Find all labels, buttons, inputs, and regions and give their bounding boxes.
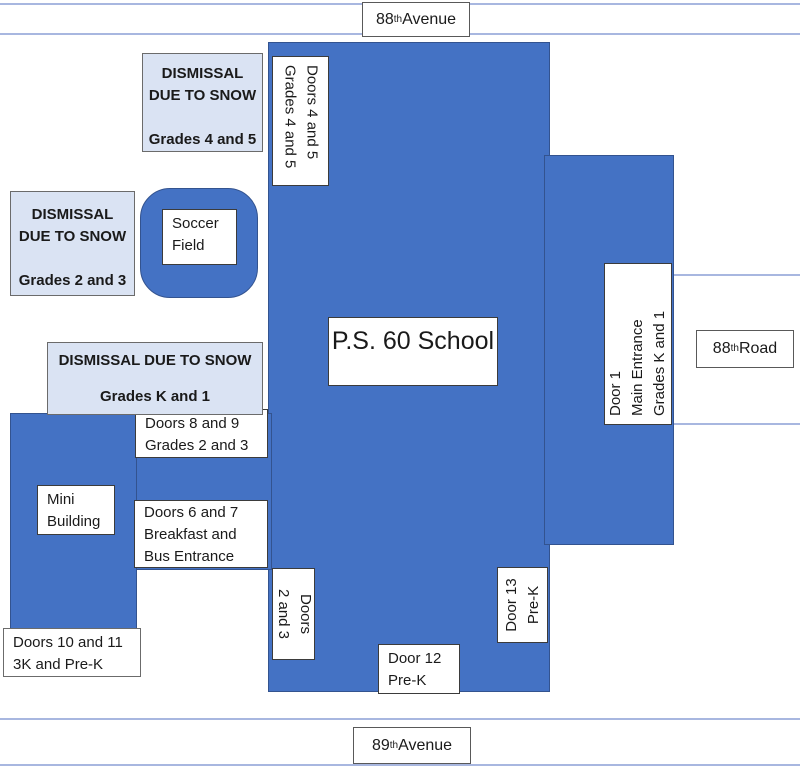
88th-road-line-upper	[672, 274, 800, 276]
road-number: 88	[713, 340, 731, 358]
road-suffix: Road	[739, 340, 777, 358]
road-ordinal: th	[390, 741, 398, 751]
rotated-text-block: Doors 4 and 5 Grades 4 and 5	[273, 57, 328, 185]
school-name-text: P.S. 60 School	[332, 327, 494, 355]
dismissal-line: DISMISSAL	[11, 204, 134, 226]
89th-avenue-line-upper	[0, 718, 800, 720]
spacer	[11, 248, 134, 270]
road-suffix: Avenue	[402, 11, 456, 29]
label-line: Building	[47, 511, 110, 533]
label-line: Pre-K	[388, 670, 455, 692]
doors-2-3-label: Doors 2 and 3	[272, 568, 315, 660]
road-suffix: Avenue	[398, 737, 452, 755]
mini-building-label: Mini Building	[37, 485, 115, 535]
doors-6-7-label: Doors 6 and 7 Breakfast and Bus Entrance	[134, 500, 268, 568]
label-line: Mini	[47, 489, 110, 511]
school-name-label: P.S. 60 School	[328, 317, 498, 386]
doors-4-5-label: Doors 4 and 5 Grades 4 and 5	[272, 56, 329, 186]
89th-avenue-line-lower	[0, 764, 800, 766]
doors-8-9-label: Doors 8 and 9 Grades 2 and 3	[135, 409, 268, 458]
label-line: 2 and 3	[272, 569, 294, 659]
label-line: Doors 8 and 9	[145, 413, 263, 435]
label-line: Grades 2 and 3	[145, 435, 263, 457]
road-ordinal: th	[394, 15, 402, 25]
label-line: Breakfast and	[144, 524, 263, 546]
dismissal-zone-grades-k-1: DISMISSAL DUE TO SNOW Grades K and 1	[47, 342, 263, 415]
label-line: Pre-K	[523, 568, 545, 642]
spacer	[48, 372, 262, 386]
label-line: 3K and Pre-K	[13, 654, 136, 676]
road-label-88th-road: 88th Road	[696, 330, 794, 368]
label-line: Field	[172, 235, 232, 257]
label-line: Grades K and 1	[649, 264, 671, 416]
road-number: 89	[372, 737, 390, 755]
label-line: Bus Entrance	[144, 546, 263, 568]
label-line: Door 1	[605, 264, 627, 416]
label-line: Door 12	[388, 648, 455, 670]
88th-road-line-lower	[672, 423, 800, 425]
doors-10-11-label: Doors 10 and 11 3K and Pre-K	[3, 628, 141, 677]
dismissal-line: DISMISSAL	[143, 63, 262, 85]
label-line: Doors	[294, 569, 316, 659]
label-line: Doors 4 and 5	[301, 65, 323, 185]
dismissal-line: DISMISSAL DUE TO SNOW	[48, 350, 262, 372]
label-line: Door 13	[501, 568, 523, 642]
dismissal-line: Grades 4 and 5	[143, 129, 262, 151]
label-line: Soccer	[172, 213, 232, 235]
door-1-main-entrance-label: Door 1 Main Entrance Grades K and 1	[604, 263, 672, 425]
rotated-text-block: Door 13 Pre-K	[500, 568, 546, 642]
label-line: Doors 10 and 11	[13, 632, 136, 654]
rotated-text-block: Doors 2 and 3	[272, 569, 315, 659]
door-12-label: Door 12 Pre-K	[378, 644, 460, 694]
road-ordinal: th	[731, 344, 739, 354]
road-label-88th-avenue: 88th Avenue	[362, 2, 470, 37]
dismissal-line: Grades 2 and 3	[11, 270, 134, 292]
dismissal-zone-grades-2-3: DISMISSAL DUE TO SNOW Grades 2 and 3	[10, 191, 135, 296]
label-line: Grades 4 and 5	[279, 65, 301, 185]
dismissal-line: DUE TO SNOW	[143, 85, 262, 107]
rotated-text-block: Door 1 Main Entrance Grades K and 1	[605, 264, 671, 424]
school-site-map: 88th Avenue 89th Avenue 88th Road DISMIS…	[0, 0, 800, 774]
dismissal-line: DUE TO SNOW	[11, 226, 134, 248]
dismissal-zone-grades-4-5: DISMISSAL DUE TO SNOW Grades 4 and 5	[142, 53, 263, 152]
road-label-89th-avenue: 89th Avenue	[353, 727, 471, 764]
road-number: 88	[376, 11, 394, 29]
soccer-field-label: Soccer Field	[162, 209, 237, 265]
label-line: Main Entrance	[627, 264, 649, 416]
door-13-label: Door 13 Pre-K	[497, 567, 548, 643]
dismissal-line: Grades K and 1	[48, 386, 262, 408]
spacer	[143, 107, 262, 129]
label-line: Doors 6 and 7	[144, 502, 263, 524]
